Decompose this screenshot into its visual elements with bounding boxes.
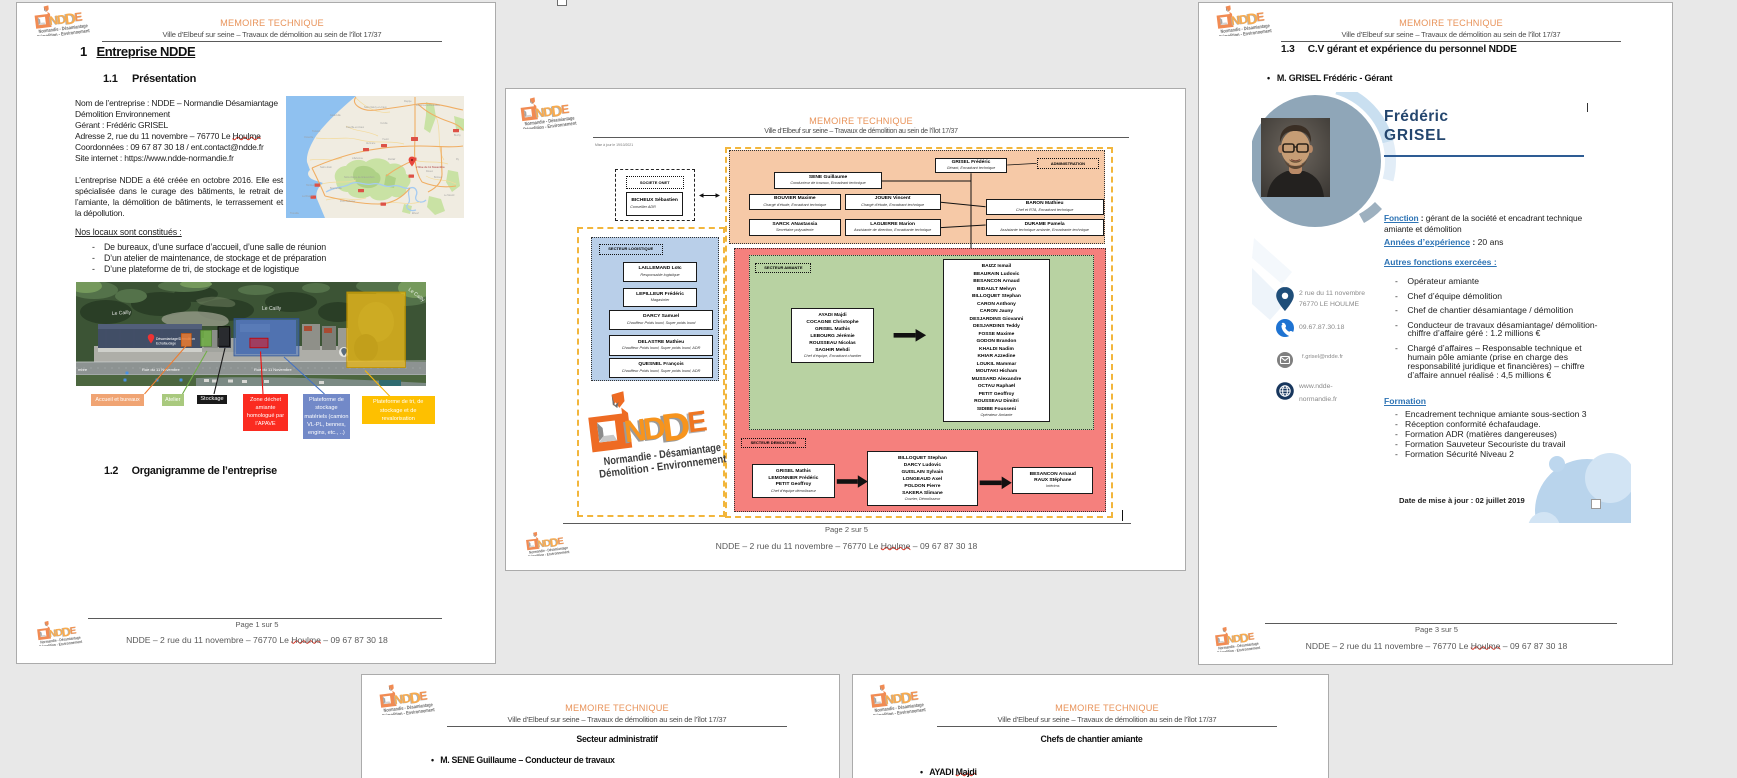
svg-text:Yerville: Yerville — [380, 122, 388, 125]
svg-text:Saint-Valery-en-Caux: Saint-Valery-en-Caux — [364, 106, 387, 109]
svg-text:Alvimare: Alvimare — [366, 142, 376, 145]
svg-text:Rouxmesnil-Bouteilles: Rouxmesnil-Bouteilles — [416, 104, 440, 107]
svg-text:Lillebonne: Lillebonne — [352, 157, 364, 160]
svg-text:Dieppe: Dieppe — [404, 100, 412, 103]
svg-text:Pont-Audemer: Pont-Audemer — [340, 200, 356, 203]
svg-text:Octeville: Octeville — [304, 136, 314, 139]
svg-text:Buchy: Buchy — [454, 134, 461, 137]
svg-text:Bonsec: Bonsec — [434, 176, 443, 179]
svg-text:Notre-Dame-de-Gravenchon: Notre-Dame-de-Gravenchon — [344, 176, 375, 179]
svg-text:Turretot: Turretot — [312, 130, 321, 133]
svg-text:Saint-Jouin: Saint-Jouin — [320, 166, 333, 169]
svg-text:Fauville-en-Caux: Fauville-en-Caux — [346, 126, 365, 129]
svg-text:Duclair: Duclair — [388, 158, 396, 161]
svg-text:Le Mesnil: Le Mesnil — [444, 194, 455, 197]
svg-text:Goderville: Goderville — [330, 114, 341, 117]
svg-text:La Rivière: La Rivière — [302, 195, 313, 198]
svg-text:E: E — [686, 405, 709, 439]
svg-text:Elbeuf: Elbeuf — [412, 212, 419, 215]
svg-text:Yvetot: Yvetot — [382, 138, 389, 141]
svg-text:Honfleur: Honfleur — [306, 184, 315, 187]
svg-text:Bourneville: Bourneville — [330, 187, 342, 190]
svg-text:2 Rue du 11 Novembre: 2 Rue du 11 Novembre — [416, 165, 445, 169]
svg-text:Rouen: Rouen — [426, 170, 434, 173]
svg-text:Trouville: Trouville — [290, 212, 300, 215]
